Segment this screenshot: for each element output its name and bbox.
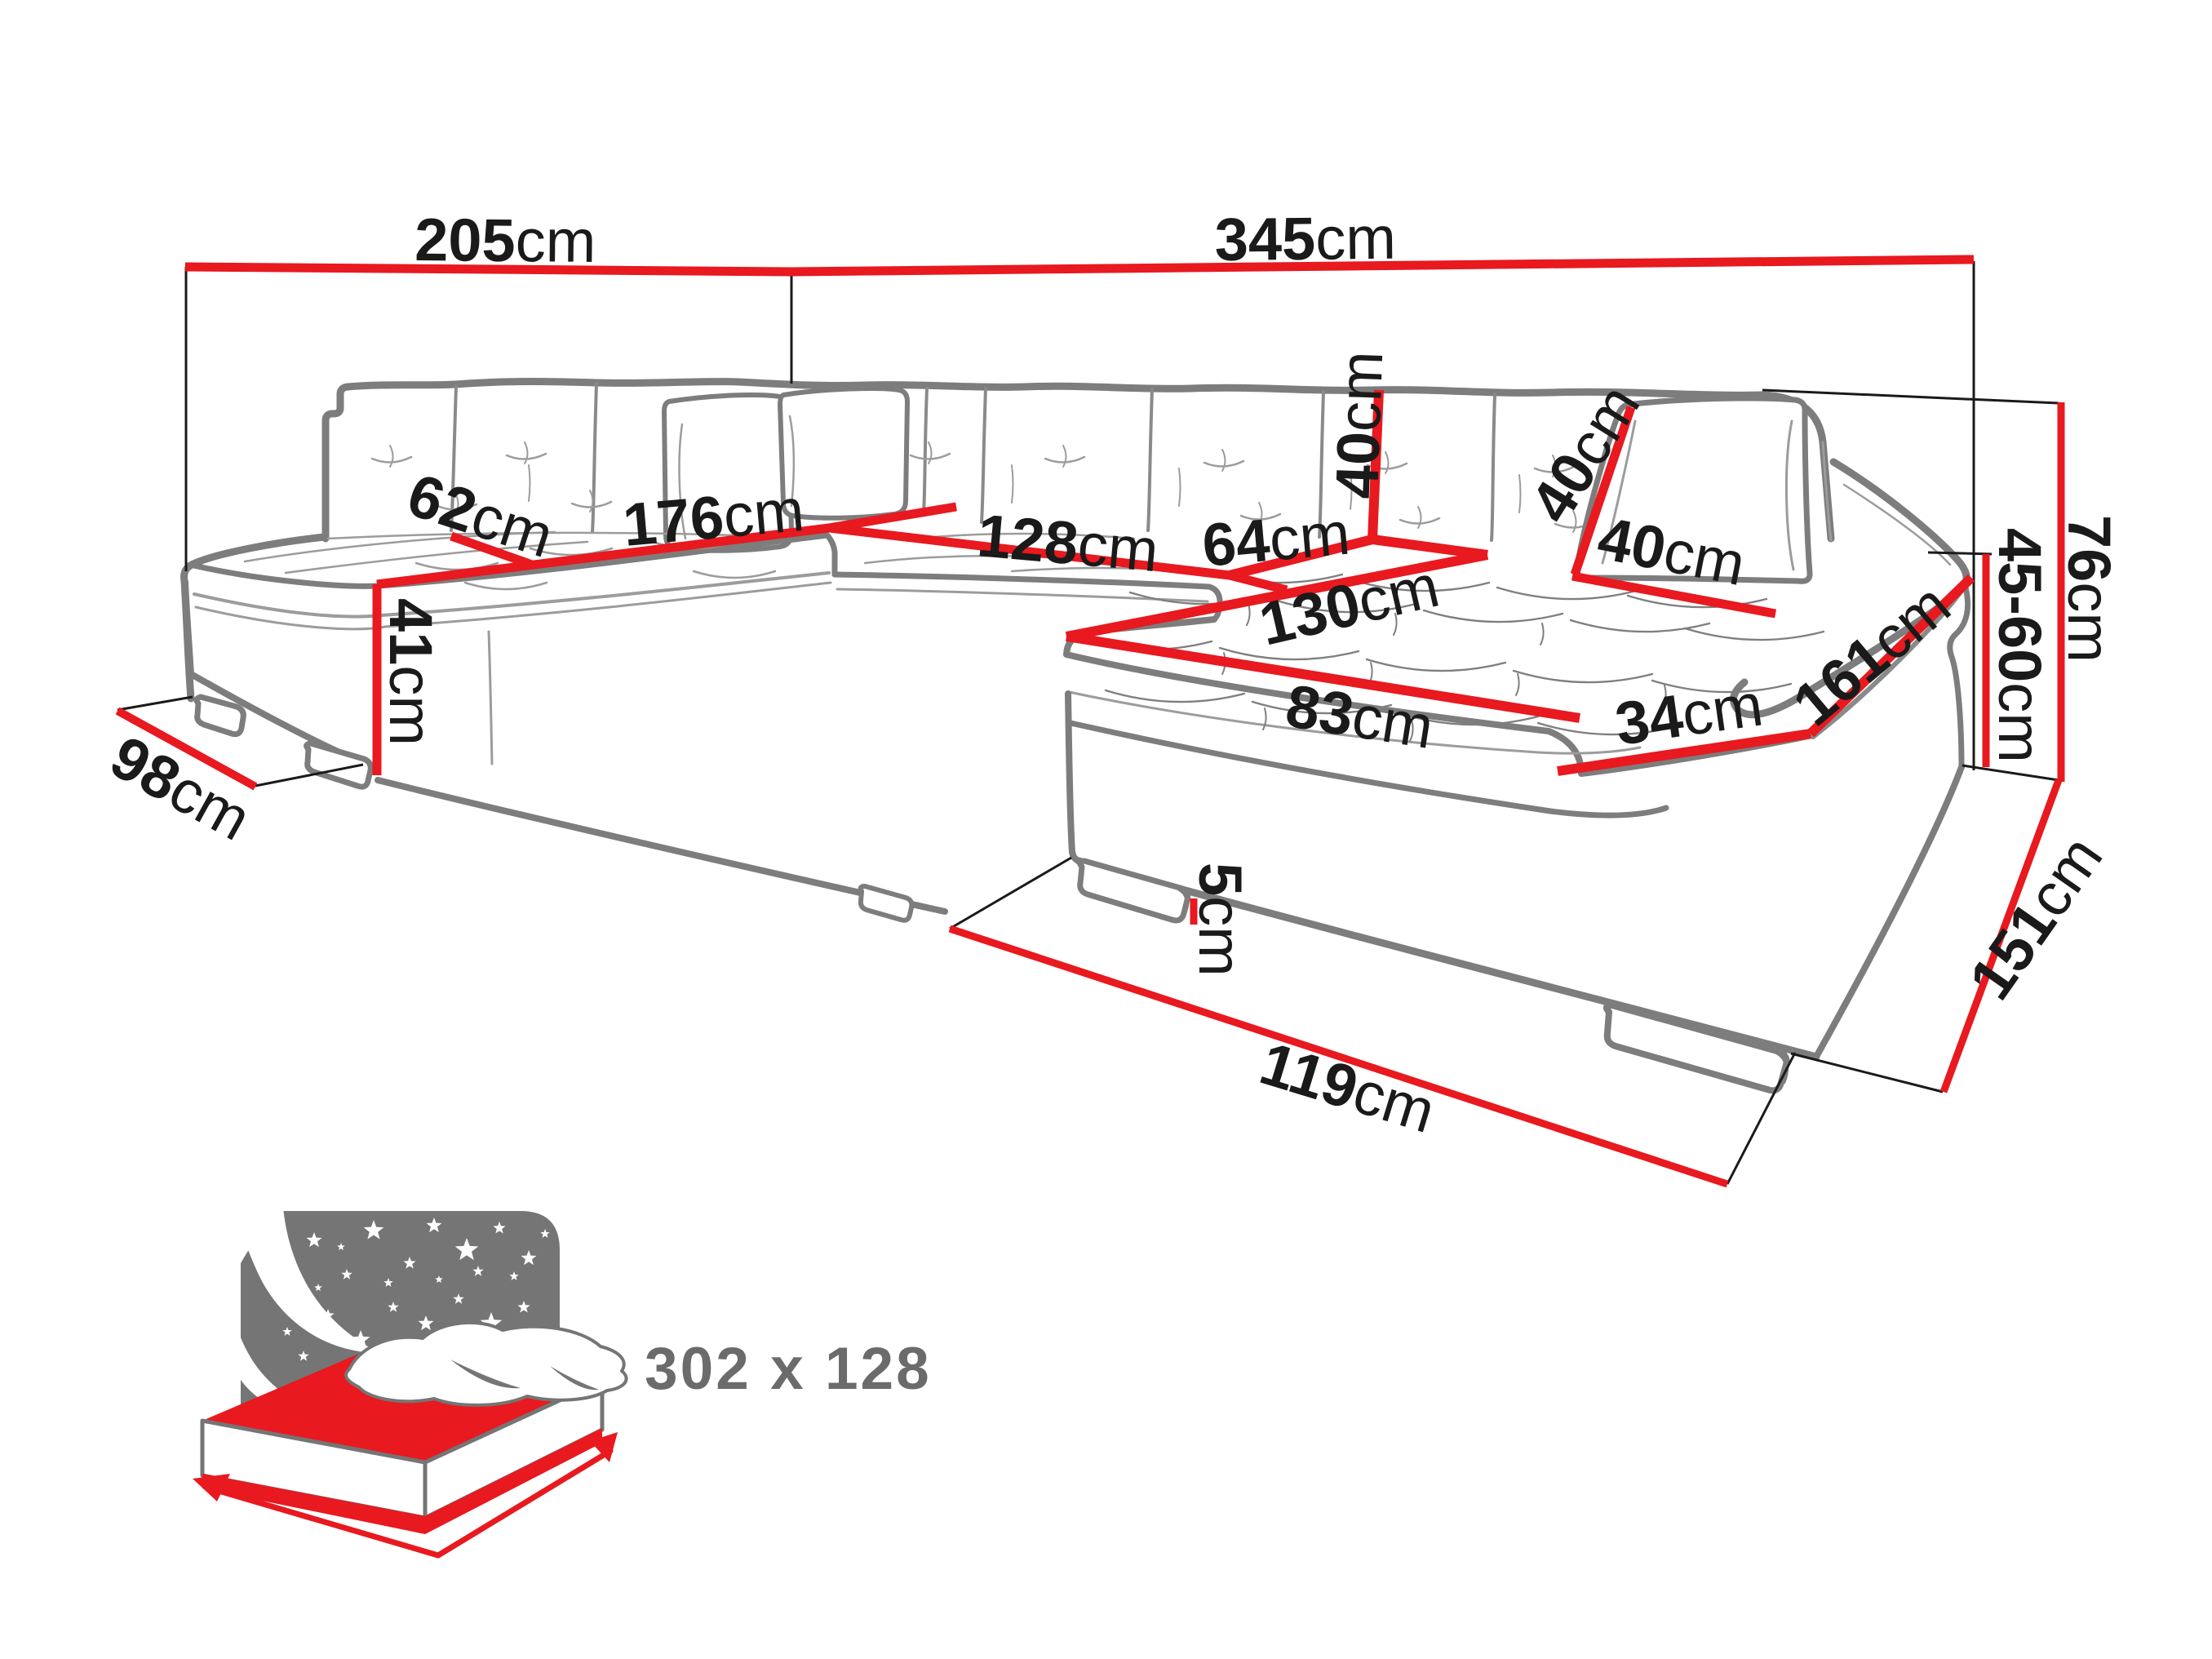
svg-text:41cm: 41cm [377, 598, 445, 746]
svg-text:5cm: 5cm [1186, 863, 1254, 977]
svg-text:40cm: 40cm [1323, 350, 1395, 500]
svg-text:205cm: 205cm [414, 206, 596, 275]
svg-text:345cm: 345cm [1214, 204, 1396, 273]
svg-text:45-60cm: 45-60cm [1986, 528, 2054, 763]
svg-text:302 x 128: 302 x 128 [645, 1336, 932, 1402]
svg-text:76cm: 76cm [2055, 515, 2123, 663]
svg-text:64cm: 64cm [1199, 499, 1353, 579]
